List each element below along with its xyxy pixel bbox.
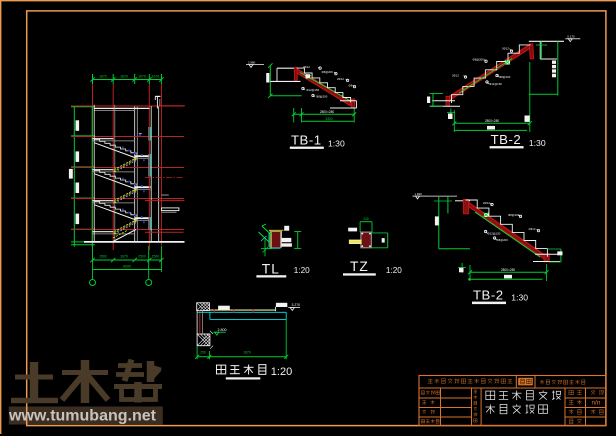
svg-text:TL: TL bbox=[262, 261, 280, 276]
svg-text:1670: 1670 bbox=[120, 255, 128, 259]
svg-text:2Φ12: 2Φ12 bbox=[529, 227, 536, 231]
svg-text:1670: 1670 bbox=[152, 75, 160, 79]
svg-text:2Φ12: 2Φ12 bbox=[502, 47, 509, 51]
svg-text:1:20: 1:20 bbox=[386, 266, 402, 275]
svg-text:TZ: TZ bbox=[350, 259, 369, 274]
svg-text:2.980: 2.980 bbox=[248, 60, 256, 64]
svg-text:Φ12@150: Φ12@150 bbox=[489, 82, 502, 86]
svg-text:Φ8@200: Φ8@200 bbox=[322, 70, 334, 74]
svg-text:Φ8@200: Φ8@200 bbox=[497, 238, 509, 242]
svg-text:n/n: n/n bbox=[592, 400, 601, 407]
svg-text:250: 250 bbox=[200, 351, 206, 355]
svg-text:1:20: 1:20 bbox=[294, 266, 310, 275]
svg-text:1500: 1500 bbox=[152, 255, 160, 259]
svg-text:2800=280: 2800=280 bbox=[320, 110, 334, 114]
svg-text:TB-2: TB-2 bbox=[473, 287, 504, 302]
svg-text:2500: 2500 bbox=[138, 255, 146, 259]
svg-text:1:20: 1:20 bbox=[271, 366, 292, 378]
svg-text:1:30: 1:30 bbox=[511, 293, 528, 303]
svg-text:2Φ12: 2Φ12 bbox=[337, 77, 344, 81]
svg-text:1670: 1670 bbox=[138, 75, 146, 79]
svg-text:1:30: 1:30 bbox=[328, 138, 345, 148]
svg-text:TB-2: TB-2 bbox=[491, 132, 522, 147]
svg-text:2800=280: 2800=280 bbox=[501, 268, 515, 272]
svg-text:Φ8@200: Φ8@200 bbox=[316, 95, 328, 99]
svg-text:2.800: 2.800 bbox=[218, 328, 227, 332]
svg-text:2Φ12: 2Φ12 bbox=[483, 201, 490, 205]
svg-text:6000: 6000 bbox=[123, 264, 131, 268]
svg-text:Φ8: Φ8 bbox=[349, 84, 353, 88]
svg-text:240: 240 bbox=[363, 217, 369, 221]
svg-text:3.270: 3.270 bbox=[292, 303, 301, 307]
svg-text:Φ8@200: Φ8@200 bbox=[508, 213, 520, 217]
svg-text:5.170: 5.170 bbox=[567, 35, 575, 39]
svg-text:1670: 1670 bbox=[120, 75, 128, 79]
svg-text:1:30: 1:30 bbox=[529, 138, 546, 148]
svg-text:2800=280: 2800=280 bbox=[485, 119, 499, 123]
svg-text:2Φ12: 2Φ12 bbox=[452, 74, 459, 78]
svg-text:1670: 1670 bbox=[99, 75, 107, 79]
svg-text:Φ12@150: Φ12@150 bbox=[306, 88, 319, 92]
svg-text:1500: 1500 bbox=[99, 255, 107, 259]
svg-text:Φ8@200: Φ8@200 bbox=[499, 75, 511, 79]
svg-text:3300: 3300 bbox=[325, 117, 332, 121]
svg-text:1.690: 1.690 bbox=[415, 192, 423, 196]
svg-text:TB-1: TB-1 bbox=[291, 133, 322, 148]
svg-text:www.tumubang.net: www.tumubang.net bbox=[8, 408, 157, 425]
svg-text:1670: 1670 bbox=[243, 351, 251, 355]
svg-text:Φ8@200: Φ8@200 bbox=[473, 58, 485, 62]
svg-text:4Φ12: 4Φ12 bbox=[303, 65, 310, 69]
svg-text:Φ12@150: Φ12@150 bbox=[488, 232, 501, 236]
